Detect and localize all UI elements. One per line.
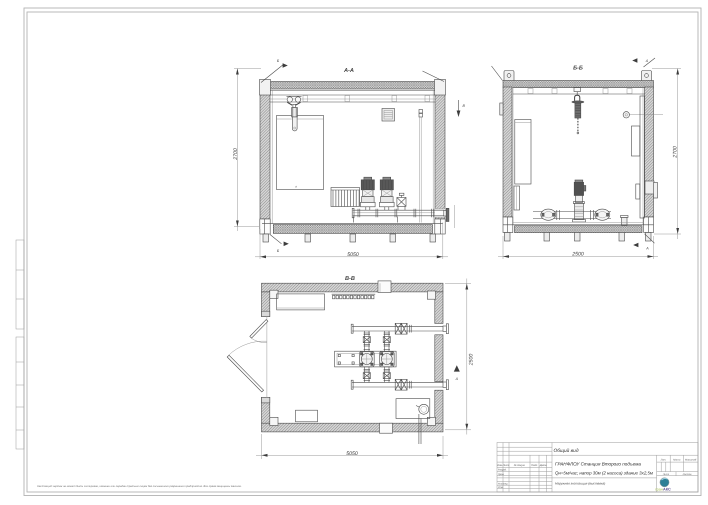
svg-text:Лит.: Лит. xyxy=(660,458,667,461)
svg-text:Масса: Масса xyxy=(673,458,681,461)
svg-text:Общий вид: Общий вид xyxy=(554,448,579,454)
svg-text:Пров.: Пров. xyxy=(498,473,505,476)
svg-text:Листов: Листов xyxy=(682,473,692,476)
svg-text:2500: 2500 xyxy=(468,354,474,367)
svg-text:Разраб.: Разраб. xyxy=(498,469,507,472)
svg-text:гранАКС: гранАКС xyxy=(655,488,671,492)
svg-text:5050: 5050 xyxy=(347,252,359,258)
svg-text:Настоящий чертеж не может быть: Настоящий чертеж не может быть скопирова… xyxy=(37,485,242,488)
svg-text:Qн=5м/час; напор 30м (2 насоса: Qн=5м/час; напор 30м (2 насоса) здание 3… xyxy=(555,470,653,475)
svg-text:А: А xyxy=(645,59,649,63)
svg-text:А: А xyxy=(455,377,459,381)
svg-text:Б-Б: Б-Б xyxy=(573,65,583,71)
svg-text:2700: 2700 xyxy=(672,146,678,159)
svg-text:Лист: Лист xyxy=(662,473,669,476)
svg-text:2700: 2700 xyxy=(233,148,239,161)
svg-text:Подп.: Подп. xyxy=(531,464,538,467)
svg-text:№ докум.: № докум. xyxy=(514,464,526,467)
svg-text:Масштаб: Масштаб xyxy=(685,458,697,461)
svg-text:А: А xyxy=(645,247,649,251)
svg-text:Наружная экспозиция (выставка): Наружная экспозиция (выставка) xyxy=(555,481,605,485)
svg-text:Утв.: Утв. xyxy=(498,486,504,489)
svg-text:А-А: А-А xyxy=(343,68,354,74)
svg-text:В-В: В-В xyxy=(345,276,355,282)
svg-text:Лист: Лист xyxy=(502,464,511,467)
svg-text:5050: 5050 xyxy=(346,451,358,457)
svg-text:Дата: Дата xyxy=(539,464,547,467)
svg-text:2500: 2500 xyxy=(571,252,584,258)
svg-text:ГРАНФЛОУ Станция Второго подъе: ГРАНФЛОУ Станция Второго подъема xyxy=(555,461,641,466)
